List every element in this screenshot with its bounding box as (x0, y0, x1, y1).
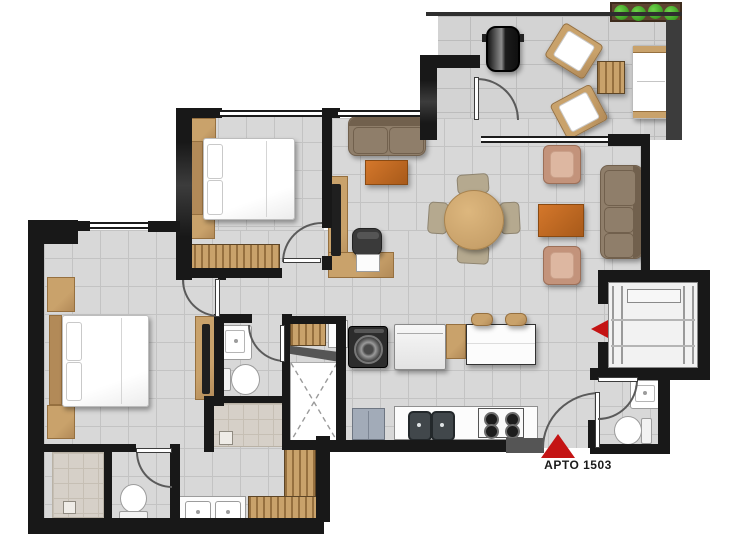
wall (590, 444, 670, 454)
wall (506, 438, 544, 453)
sink-bowl (408, 411, 432, 441)
closet-wood (284, 444, 316, 500)
sink-faucet (196, 510, 200, 514)
wall (598, 270, 710, 282)
window (220, 110, 324, 117)
window (338, 110, 422, 117)
toilet-tank (641, 418, 652, 444)
sink-drain (417, 423, 421, 427)
wall (28, 238, 44, 534)
wall (316, 436, 330, 522)
sofa-cushion (604, 207, 634, 233)
double-sink (408, 411, 452, 437)
elevator-rail (612, 286, 623, 364)
sink-faucet (643, 391, 647, 395)
bbq-grill (486, 26, 520, 72)
sink-faucet (226, 510, 230, 514)
balcony-sofa-arm (633, 111, 668, 118)
lounge-chair-cushion (558, 91, 600, 133)
wall (186, 108, 222, 118)
elevator-line (611, 345, 695, 347)
wall (44, 444, 136, 452)
armchair-1 (543, 145, 581, 184)
desk-tv (331, 184, 341, 256)
door-leaf (136, 448, 172, 453)
sofa-cushion (604, 233, 634, 258)
burner-icon (484, 424, 499, 439)
bed-pillow (66, 362, 82, 401)
door-leaf (474, 77, 479, 120)
wall-tv (202, 324, 210, 394)
sink-bowl (431, 411, 455, 441)
wall (176, 268, 282, 278)
balcony-sofa (632, 45, 669, 119)
door-leaf (280, 325, 285, 362)
wall (204, 396, 286, 403)
grill-handle-right (520, 34, 524, 42)
nightstand (47, 277, 75, 312)
desk-laptop (356, 254, 380, 272)
shower-drain (219, 431, 233, 445)
elevator-rail (683, 286, 694, 364)
wall (658, 378, 670, 454)
loveseat-cushion (353, 127, 388, 154)
wall (204, 396, 214, 452)
wardrobe-closet (186, 244, 280, 270)
wall (420, 55, 480, 68)
base-cabinet (352, 408, 385, 440)
bar-stool (505, 313, 527, 326)
shower-floor (52, 452, 104, 518)
wall (104, 452, 112, 522)
wall (148, 221, 180, 232)
wall (76, 221, 90, 231)
wall (214, 314, 224, 406)
wall (330, 440, 510, 452)
wall (598, 282, 608, 304)
balcony-side-table (597, 61, 625, 94)
armchair-seat (550, 151, 574, 178)
armchair-seat (550, 252, 574, 279)
kitchen-island (466, 324, 536, 365)
balcony-sofa-arm (633, 46, 668, 53)
elevator-line (611, 319, 695, 321)
floor-plan: APTO 1503 (0, 0, 736, 537)
armchair-2 (543, 246, 581, 285)
toilet-bowl (120, 484, 147, 513)
wall (282, 316, 344, 324)
sofa-large (600, 165, 643, 259)
duct-shaft (290, 362, 338, 442)
wall (641, 140, 650, 274)
bed-double (203, 138, 295, 220)
toilet (221, 364, 261, 395)
toilet-bowl (614, 416, 642, 445)
door-leaf (598, 377, 638, 382)
island-seam (467, 343, 535, 344)
bar-stool (471, 313, 493, 326)
nightstand (47, 405, 75, 439)
coffee-table-2 (538, 204, 584, 237)
balcony-rail (426, 12, 682, 16)
sink-drain (440, 423, 444, 427)
bed-pillow (66, 322, 82, 361)
wall (698, 282, 710, 376)
dining-table (444, 190, 504, 250)
office-chair-back (357, 232, 379, 239)
balcony-sofa-seam (637, 81, 665, 82)
toilet (118, 484, 150, 522)
toilet-bowl (231, 364, 260, 395)
duvet-fold (121, 318, 122, 404)
grill-handle-left (482, 34, 486, 42)
window (88, 222, 150, 229)
coffee-table-1 (365, 160, 408, 185)
bed-pillow (207, 144, 223, 179)
balcony-corner-mask (416, 12, 438, 56)
office-chair (352, 228, 382, 256)
elevator-panel (627, 289, 681, 303)
unit-label: APTO 1503 (520, 458, 636, 472)
shower-floor (212, 403, 284, 447)
kitchen-cabinet (446, 324, 466, 359)
wall (176, 272, 186, 280)
sink-faucet (234, 339, 238, 343)
washer-drum (354, 335, 383, 364)
wall (336, 316, 346, 450)
shower-drain (63, 501, 76, 514)
burner-icon (505, 424, 520, 439)
wall (176, 108, 192, 280)
bed-headboard (49, 315, 62, 405)
gas-stove (478, 408, 524, 438)
duvet-fold (266, 141, 267, 217)
toilet (614, 416, 654, 446)
loveseat-sofa (348, 116, 426, 156)
washer-controls (354, 329, 384, 333)
door-leaf (215, 279, 220, 317)
refrigerator (394, 324, 446, 370)
sliding-door (481, 136, 611, 143)
wall (666, 20, 682, 140)
sofa-chaise-cushion (604, 170, 636, 206)
loveseat-back (349, 117, 425, 126)
loveseat-cushion (389, 127, 424, 154)
door-leaf (283, 258, 321, 263)
fridge-door-line (397, 333, 443, 334)
wall (322, 256, 332, 270)
washing-machine (348, 326, 388, 368)
elevator-car (608, 282, 698, 368)
entry-marker-icon (541, 434, 575, 458)
cabinet-split (368, 411, 369, 439)
bed-master (62, 315, 149, 407)
bathroom-sink (220, 325, 252, 360)
bed-pillow (207, 180, 223, 215)
wall (322, 116, 332, 228)
elevator-marker-icon (591, 320, 608, 338)
